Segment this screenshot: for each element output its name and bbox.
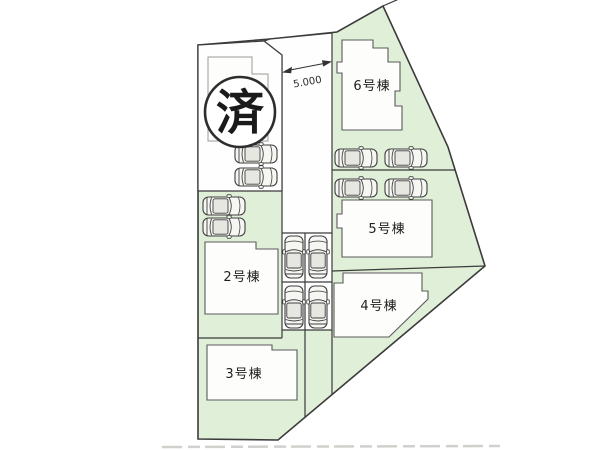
- car-icon: [283, 286, 306, 328]
- car-icon: [335, 177, 377, 200]
- car-icon: [335, 147, 377, 170]
- building-4-label: 4号棟: [360, 299, 397, 314]
- building-3-label: 3号棟: [225, 367, 262, 382]
- road-edge-line: [162, 446, 500, 447]
- car-icon: [307, 286, 330, 328]
- site-plan-drawing: 2号棟 3号棟 4号棟 5号棟 6号棟 5.000: [0, 0, 600, 450]
- building-5-label: 5号棟: [368, 222, 405, 237]
- car-icon: [307, 236, 330, 278]
- sold-badge-text: 済: [216, 85, 265, 141]
- car-icon: [385, 177, 427, 200]
- car-icon: [203, 195, 245, 218]
- site-plan-canvas: 2号棟 3号棟 4号棟 5号棟 6号棟 5.000: [0, 0, 600, 450]
- building-2-label: 2号棟: [223, 270, 260, 285]
- car-icon: [235, 166, 277, 189]
- sold-badge: 済: [205, 77, 275, 147]
- boundary-overshoot-line: [383, 0, 399, 6]
- building-6-label: 6号棟: [353, 79, 390, 94]
- car-icon: [283, 236, 306, 278]
- car-icon: [203, 216, 245, 239]
- car-icon: [385, 147, 427, 170]
